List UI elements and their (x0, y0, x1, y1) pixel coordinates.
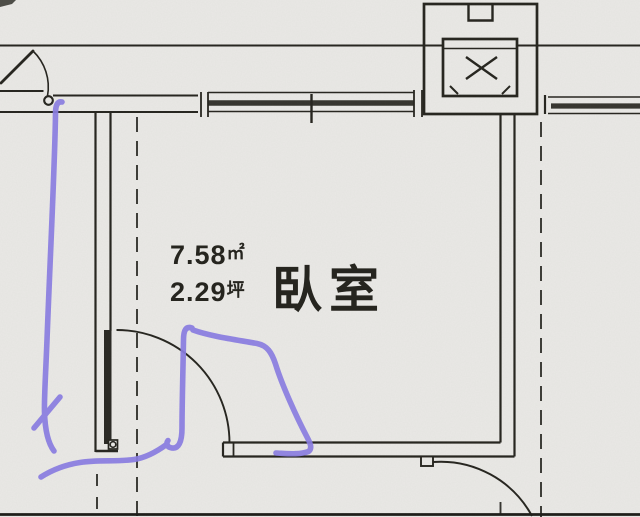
area-label-block: 7.58㎡ 2.29坪 (170, 238, 245, 312)
elevator-shaft-symbol (424, 4, 537, 114)
shaft-notch (469, 5, 493, 21)
hall-wall-band (0, 91, 198, 112)
window-jamb-left (201, 92, 208, 117)
right-window-band (545, 95, 640, 114)
room-label: 臥室 (272, 250, 386, 322)
window-jamb-right (414, 90, 422, 117)
area-sqm-line: 7.58㎡ (170, 238, 245, 275)
area-ping-value: 2.29 (170, 277, 227, 307)
bedroom-right-wall (501, 114, 515, 457)
annotation-bottom-wave-stroke (41, 445, 167, 478)
area-sqm-value: 7.58 (170, 240, 227, 270)
bedroom-door-swing (117, 330, 230, 443)
neighbor-door-swing (421, 457, 532, 517)
bedroom-door-leaf (104, 330, 112, 444)
annotation-right-loop-stroke (193, 330, 311, 454)
entry-door-swing (1, 51, 53, 105)
area-sqm-unit: ㎡ (227, 243, 245, 263)
bedroom-bottom-wall (223, 443, 515, 457)
area-ping-line: 2.29坪 (170, 275, 245, 312)
floorplan: 7.58㎡ 2.29坪 臥室 (0, 0, 640, 517)
photo-edge-mark (0, 0, 16, 7)
door-hinge-icon (110, 442, 116, 448)
bedroom-window-band (208, 93, 414, 124)
annotation-door-j-stroke (167, 328, 192, 449)
door-hinge-icon (44, 96, 53, 105)
area-ping-unit: 坪 (227, 280, 245, 300)
bedroom-left-wall (96, 113, 119, 452)
